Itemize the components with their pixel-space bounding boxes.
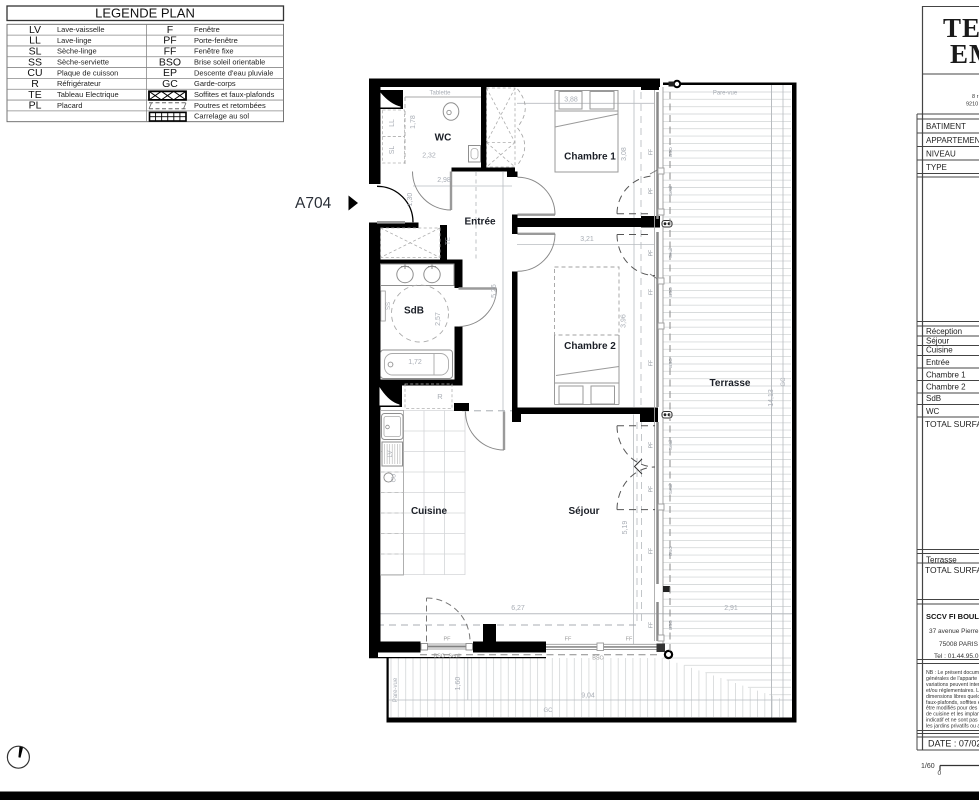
svg-text:Séjour: Séjour: [926, 337, 949, 346]
svg-text:FF: FF: [565, 637, 572, 643]
svg-text:R: R: [437, 392, 443, 401]
svg-text:BSO Seuil: BSO Seuil: [434, 654, 461, 660]
svg-text:6,27: 6,27: [511, 605, 525, 612]
svg-text:TE: TE: [446, 237, 452, 245]
svg-text:Sèche-serviette: Sèche-serviette: [57, 58, 109, 67]
svg-text:Descente d'eau pluviale: Descente d'eau pluviale: [194, 68, 273, 77]
svg-text:SdB: SdB: [926, 394, 941, 403]
svg-text:Seuil: Seuil: [668, 186, 673, 196]
svg-text:Séjour: Séjour: [568, 506, 599, 517]
svg-text:3,88: 3,88: [564, 97, 578, 104]
svg-text:BSO: BSO: [668, 620, 673, 630]
svg-text:Réception: Réception: [926, 327, 962, 336]
svg-text:Entrée: Entrée: [464, 217, 496, 228]
svg-text:LL: LL: [389, 119, 396, 127]
svg-text:Entrée: Entrée: [926, 358, 950, 367]
svg-text:75008 PARIS: 75008 PARIS: [939, 641, 979, 648]
svg-text:Fenêtre: Fenêtre: [194, 25, 220, 34]
svg-text:9,04: 9,04: [581, 693, 595, 700]
svg-text:Fenêtre fixe: Fenêtre fixe: [194, 47, 234, 56]
svg-text:PF: PF: [649, 250, 655, 256]
svg-text:PF: PF: [649, 486, 655, 492]
svg-text:FF: FF: [649, 622, 655, 628]
svg-text:EMB: EMB: [950, 39, 979, 69]
svg-text:3,21: 3,21: [580, 236, 594, 243]
svg-text:CU: CU: [392, 474, 398, 483]
svg-text:PF: PF: [443, 637, 451, 643]
svg-text:Lave-linge: Lave-linge: [57, 36, 92, 45]
svg-text:Réfrigérateur: Réfrigérateur: [57, 79, 101, 88]
svg-text:1,72: 1,72: [408, 359, 422, 366]
svg-text:Pare-vue: Pare-vue: [393, 677, 399, 702]
svg-text:8 r: 8 r: [972, 94, 979, 100]
svg-text:9210: 9210: [966, 102, 978, 108]
svg-text:Tablette: Tablette: [429, 91, 451, 97]
svg-text:SdB: SdB: [404, 306, 424, 317]
svg-text:5,19: 5,19: [622, 521, 629, 535]
svg-text:Cuisine: Cuisine: [411, 506, 448, 517]
svg-text:PL: PL: [29, 100, 42, 112]
svg-text:WC: WC: [926, 407, 940, 416]
svg-text:BSO: BSO: [668, 287, 673, 297]
svg-text:Poutres et retombées: Poutres et retombées: [194, 101, 266, 110]
svg-text:SS: SS: [386, 302, 392, 310]
svg-text:Lave-vaisselle: Lave-vaisselle: [57, 25, 105, 34]
svg-text:TOTAL SURFACE: TOTAL SURFACE: [925, 419, 979, 429]
svg-text:GC: GC: [162, 78, 178, 90]
svg-text:1/60: 1/60: [921, 763, 935, 770]
svg-text:NIVEAU: NIVEAU: [926, 150, 956, 159]
svg-text:FF: FF: [649, 360, 655, 366]
svg-text:WC: WC: [435, 133, 452, 144]
svg-text:Seuil: Seuil: [668, 484, 673, 494]
svg-text:DATE : 07/02/2: DATE : 07/02/2: [928, 739, 979, 749]
svg-text:FF: FF: [649, 289, 655, 295]
svg-text:A704: A704: [295, 195, 332, 212]
svg-text:BSO: BSO: [668, 546, 673, 556]
svg-text:Plaque de cuisson: Plaque de cuisson: [57, 68, 118, 77]
svg-text:2,32: 2,32: [422, 153, 436, 160]
svg-text:3,08: 3,08: [621, 147, 628, 161]
svg-text:Garde-corps: Garde-corps: [194, 79, 236, 88]
svg-text:Carrelage au sol: Carrelage au sol: [194, 111, 249, 120]
svg-text:2,57: 2,57: [435, 312, 442, 326]
svg-text:Terrasse: Terrasse: [926, 556, 957, 565]
svg-text:14,13: 14,13: [768, 389, 775, 407]
svg-text:Placard: Placard: [57, 101, 82, 110]
svg-text:BATIMENT: BATIMENT: [926, 122, 966, 131]
svg-text:Seuil: Seuil: [668, 440, 673, 450]
svg-text:Chambre 2: Chambre 2: [926, 383, 966, 392]
svg-text:Cuisine: Cuisine: [926, 346, 953, 355]
svg-text:TYPE: TYPE: [926, 163, 947, 172]
svg-text:5,26: 5,26: [491, 284, 498, 298]
svg-text:APPARTEMENT: APPARTEMENT: [926, 136, 979, 145]
svg-text:BSO: BSO: [668, 358, 673, 368]
svg-text:Soffites et faux-plafonds: Soffites et faux-plafonds: [194, 90, 275, 99]
svg-text:Seuil: Seuil: [668, 248, 673, 258]
svg-text:FF: FF: [649, 548, 655, 554]
svg-text:SCCV FI BOULOGNE: SCCV FI BOULOGNE: [926, 612, 979, 621]
svg-text:LV: LV: [388, 451, 394, 458]
svg-text:2,98: 2,98: [437, 177, 451, 184]
svg-text:Pare-vue: Pare-vue: [713, 91, 738, 97]
svg-text:PF: PF: [649, 188, 655, 194]
svg-text:1,30: 1,30: [407, 193, 414, 207]
svg-text:3,96: 3,96: [621, 314, 628, 328]
svg-text:1,60: 1,60: [455, 677, 462, 691]
svg-text:BSO: BSO: [668, 147, 673, 157]
svg-text:Sèche-linge: Sèche-linge: [57, 47, 97, 56]
svg-text:PF: PF: [649, 442, 655, 448]
svg-text:0: 0: [938, 770, 942, 777]
svg-text:Chambre 1: Chambre 1: [926, 371, 966, 380]
svg-text:FF: FF: [649, 149, 655, 155]
svg-text:FF: FF: [626, 637, 633, 643]
svg-text:Tel : 01.44.95.0: Tel : 01.44.95.0: [934, 653, 979, 660]
svg-text:Tableau Electrique: Tableau Electrique: [57, 90, 119, 99]
svg-text:GC: GC: [544, 708, 554, 714]
svg-text:37 avenue Pierre 1er: 37 avenue Pierre 1er: [929, 628, 979, 635]
svg-text:GC: GC: [781, 377, 787, 387]
svg-text:Porte-fenêtre: Porte-fenêtre: [194, 36, 238, 45]
svg-text:LEGENDE PLAN: LEGENDE PLAN: [95, 5, 195, 20]
svg-text:les jardins privatifs ou a: les jardins privatifs ou a: [926, 724, 979, 730]
svg-text:Chambre 1: Chambre 1: [564, 152, 616, 163]
svg-text:TOTAL SURFACE: TOTAL SURFACE: [925, 565, 979, 575]
svg-text:Terrasse: Terrasse: [710, 378, 751, 389]
svg-text:2,91: 2,91: [724, 605, 738, 612]
svg-text:1,78: 1,78: [410, 115, 417, 129]
svg-text:Chambre 2: Chambre 2: [564, 341, 616, 352]
svg-text:Brise soleil orientable: Brise soleil orientable: [194, 58, 265, 67]
svg-text:BSO: BSO: [592, 656, 604, 662]
svg-text:SL: SL: [389, 146, 396, 155]
